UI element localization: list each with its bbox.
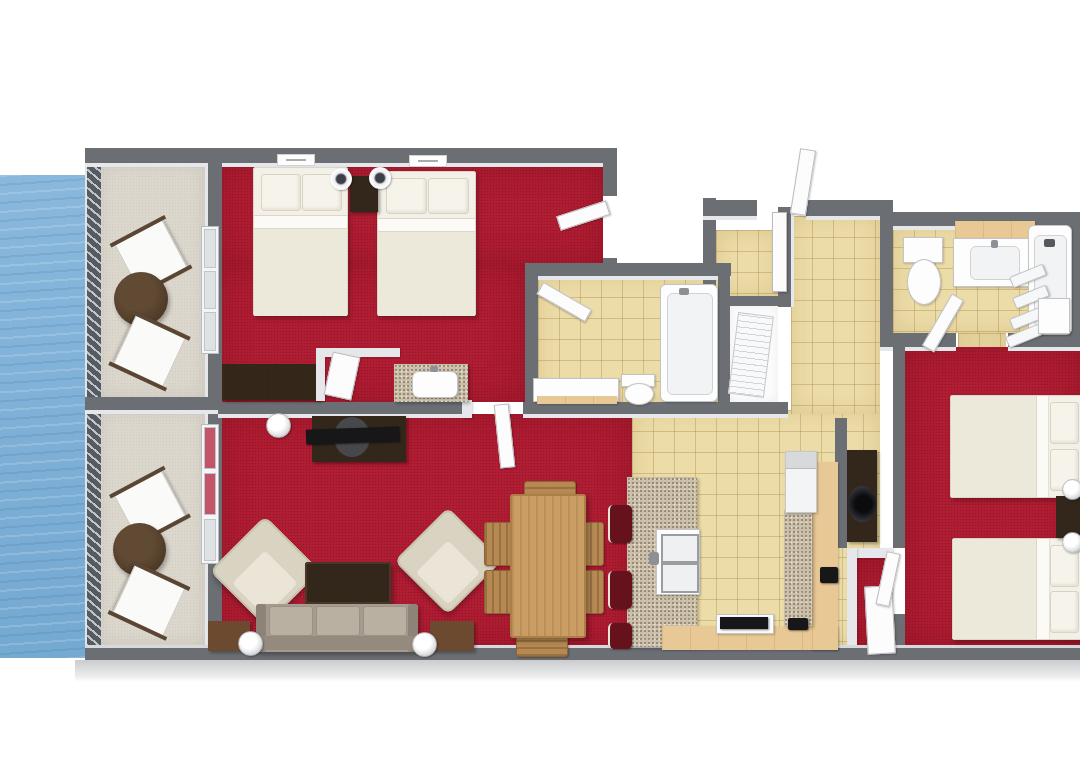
water <box>0 175 85 658</box>
bed <box>253 167 348 316</box>
bathroom-shelf <box>1038 298 1070 334</box>
hall-closet-door <box>772 212 787 292</box>
bathroom1-right-wall <box>718 276 730 402</box>
bathtub <box>660 284 718 402</box>
table-lamp <box>369 167 391 189</box>
bottom-wall-face <box>75 660 1080 682</box>
refrigerator <box>785 451 817 513</box>
vanity-alcove-wall <box>316 348 400 357</box>
hall-floor <box>791 216 880 414</box>
faucet <box>991 240 998 248</box>
small-appliance <box>788 618 808 630</box>
wall-plaque <box>409 155 447 167</box>
table-lamp <box>1062 532 1080 553</box>
counter-granite <box>784 510 812 626</box>
entry-wall-left <box>703 200 757 220</box>
table-lamp <box>1062 479 1080 500</box>
bedroom1-living-wall-right <box>523 402 788 418</box>
cooktop <box>720 617 768 629</box>
balcony-divider-wall <box>85 397 219 414</box>
bar-stool <box>608 623 632 649</box>
coffee-table <box>305 562 391 604</box>
wall-plaque <box>277 154 315 166</box>
table-lamp <box>412 632 437 657</box>
bathroom1-vanity-base <box>537 396 617 404</box>
bar-stool <box>608 505 632 543</box>
floor-lamp <box>266 413 291 438</box>
dresser <box>222 364 320 400</box>
bed <box>950 395 1080 498</box>
table-lamp <box>238 631 263 656</box>
vanity-sink <box>412 371 458 398</box>
tub-faucet <box>679 288 689 295</box>
bathroom1-top-wall <box>525 263 731 280</box>
bar-stool <box>608 571 632 609</box>
toilet-bowl <box>907 259 941 305</box>
doorway-jamb <box>462 400 472 418</box>
table-lamp <box>330 168 352 190</box>
dining-table <box>510 494 586 638</box>
faucet <box>430 366 438 372</box>
balcony-sliding-door <box>201 226 219 354</box>
bedroom2-left-wall-upper <box>893 347 905 548</box>
bathroom2-bottom-wall-left <box>880 333 956 351</box>
sink-faucet <box>649 552 659 565</box>
toilet-bowl <box>624 383 654 405</box>
bed <box>952 538 1080 640</box>
bedroom2-entry-wall-left <box>847 548 857 654</box>
floor-plan-rendering <box>0 0 1080 760</box>
bathroom2-left-wall <box>880 226 893 334</box>
balcony-sliding-door <box>201 424 219 564</box>
bedroom1-right-wall-upper <box>603 148 617 196</box>
bed <box>377 171 476 316</box>
tv <box>848 486 876 522</box>
kitchen-sink <box>656 529 700 595</box>
sofa <box>256 604 418 652</box>
coffee-maker <box>820 567 838 583</box>
top-wall <box>85 148 617 167</box>
hall-closet-bottom-wall <box>716 296 780 306</box>
tub-faucet <box>1044 239 1055 247</box>
bathroom2-backsplash <box>955 221 1035 239</box>
